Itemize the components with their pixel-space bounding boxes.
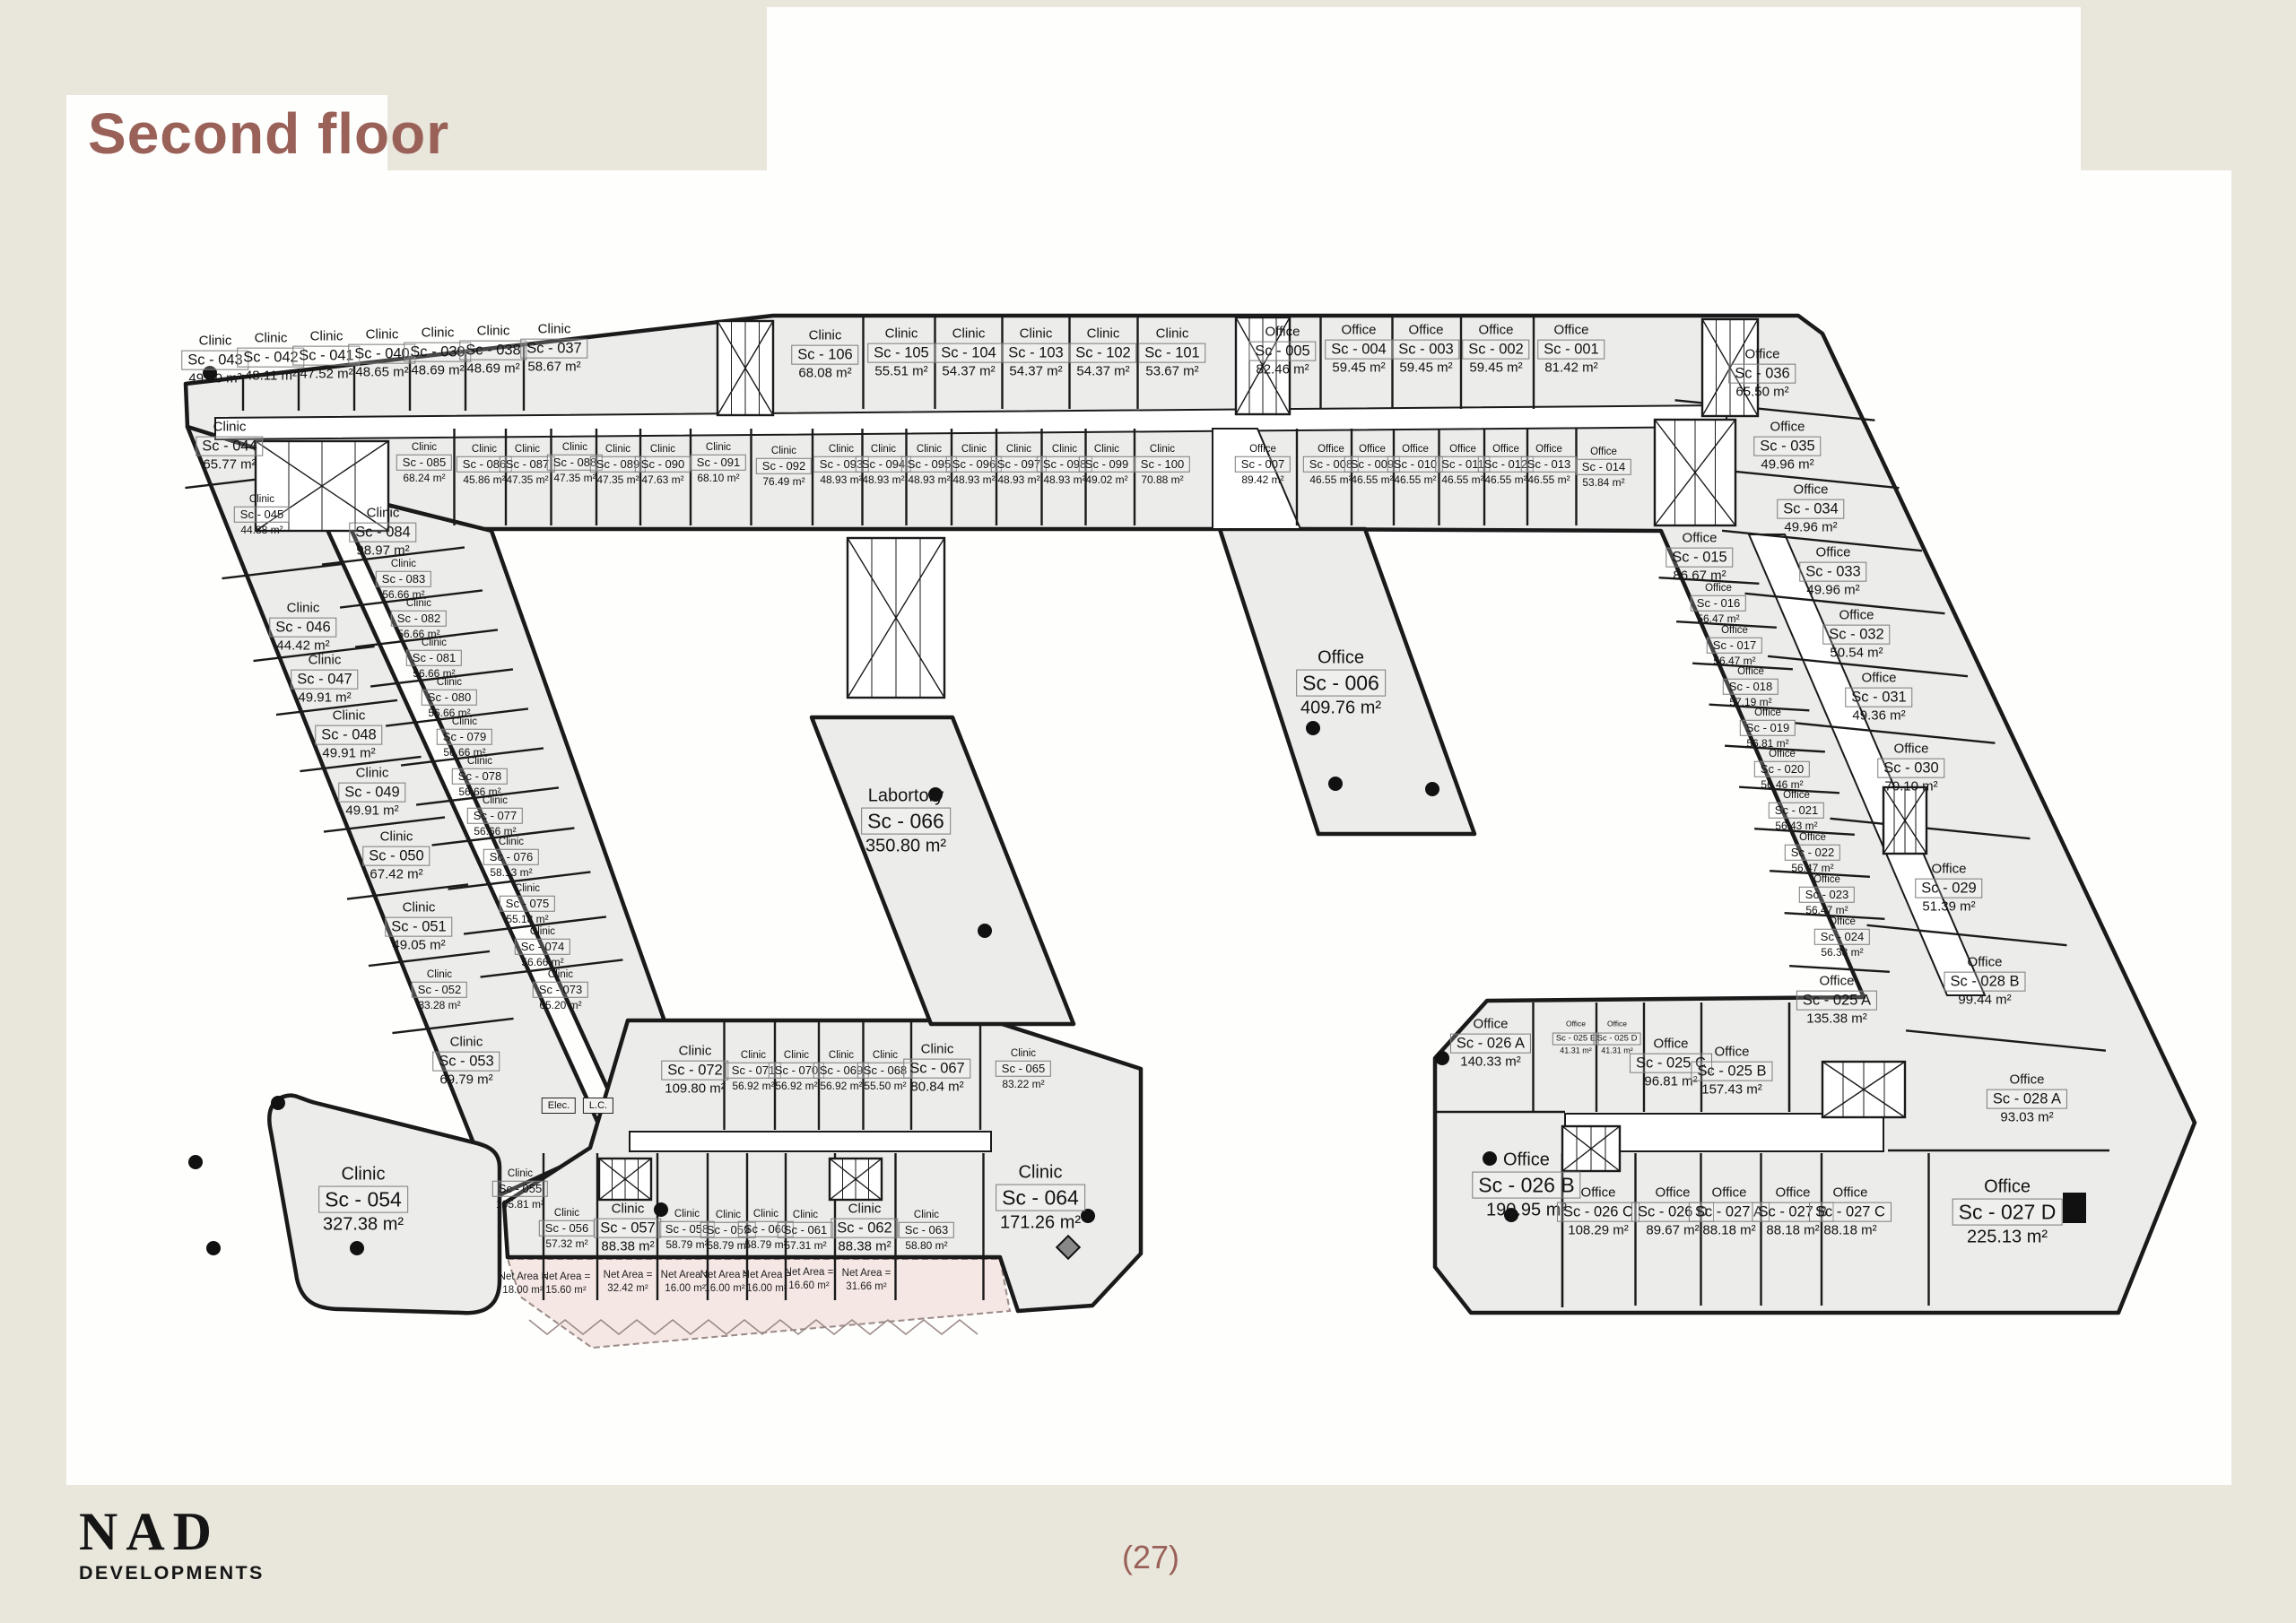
room-number: Sc - 092 (756, 458, 812, 474)
room-label-sc-032: OfficeSc - 03250.54 m² (1822, 608, 1890, 663)
room-label-sc-081: ClinicSc - 08156.66 m² (406, 637, 462, 681)
utility-room-label: Elec. (542, 1098, 576, 1114)
logo-subtitle-text: DEVELOPMENTS (79, 1562, 265, 1584)
room-number: Sc - 100 (1135, 456, 1190, 473)
room-area: 108.29 m² (1557, 1223, 1639, 1239)
room-area: 70.10 m² (1877, 779, 1944, 795)
room-area: 58.67 m² (520, 360, 587, 376)
room-type: Office (1665, 531, 1733, 547)
net-area-label: Net Area =16.60 m² (785, 1266, 834, 1293)
room-area: 49.91 m² (315, 746, 382, 762)
room-area: 51.39 m² (1915, 899, 1982, 916)
room-label-sc-038: ClinicSc - 03848.69 m² (459, 324, 526, 378)
room-type: Office (1691, 582, 1746, 595)
room-type: Office (1594, 1020, 1641, 1028)
room-number: Sc - 046 (269, 618, 336, 638)
room-type: Office (1557, 1185, 1639, 1202)
room-label-sc-003: OfficeSc - 00359.45 m² (1392, 323, 1459, 378)
room-label-sc-092: ClinicSc - 09276.49 m² (756, 445, 812, 489)
room-label-sc-013: OfficeSc - 01346.55 m² (1521, 443, 1577, 487)
room-number: Sc - 105 (867, 343, 935, 363)
room-type: Clinic (867, 326, 935, 343)
room-area: 46.55 m² (1521, 473, 1577, 487)
room-area: 69.79 m² (432, 1072, 500, 1089)
room-area: 59.45 m² (1462, 360, 1529, 377)
room-label-sc-020: OfficeSc - 02056.46 m² (1754, 748, 1810, 792)
room-area: 54.37 m² (1002, 364, 1069, 380)
room-type: Office (1392, 323, 1459, 339)
room-number: Sc - 007 (1235, 456, 1291, 473)
room-number: Sc - 028 A (1987, 1089, 2067, 1109)
room-label-sc-027d: OfficeSc - 027 D225.13 m² (1952, 1176, 2063, 1249)
room-label-sc-099: ClinicSc - 09949.02 m² (1079, 443, 1135, 487)
room-type: Clinic (899, 1209, 954, 1221)
room-label-sc-021: OfficeSc - 02156.43 m² (1769, 789, 1824, 833)
page-title: Second floor (88, 100, 449, 167)
room-area: 49.91 m² (291, 690, 358, 707)
stair-core-icon (830, 1159, 882, 1200)
room-number: Sc - 052 (412, 982, 467, 998)
room-type: Clinic (376, 558, 431, 570)
room-area: 41.31 m² (1552, 1046, 1599, 1055)
room-number: Sc - 075 (500, 896, 555, 912)
room-label-sc-057: ClinicSc - 05788.38 m² (594, 1202, 661, 1256)
room-area: 55.51 m² (867, 364, 935, 380)
room-type: Clinic (1079, 443, 1135, 456)
room-number: Sc - 077 (467, 808, 523, 824)
room-type: Office (1576, 446, 1631, 458)
room-number: Sc - 048 (315, 725, 382, 745)
room-area: 57.32 m² (539, 1237, 595, 1251)
room-label-sc-077: ClinicSc - 07756.66 m² (467, 794, 523, 838)
room-label-sc-052: ClinicSc - 05233.28 m² (412, 968, 467, 1012)
room-type: Clinic (315, 708, 382, 725)
room-type: Clinic (594, 1202, 661, 1218)
room-type: Clinic (269, 601, 336, 617)
room-type: Office (1462, 323, 1529, 339)
room-type: Clinic (412, 968, 467, 981)
room-label-sc-064: ClinicSc - 064171.26 m² (996, 1162, 1085, 1235)
room-number: Sc - 061 (778, 1222, 833, 1238)
room-label-sc-075: ClinicSc - 07555.18 m² (500, 882, 555, 926)
room-type: Clinic (459, 324, 526, 340)
room-label-sc-076: ClinicSc - 07658.13 m² (483, 836, 539, 880)
room-number: Sc - 025 B (1691, 1062, 1772, 1081)
room-label-sc-085: ClinicSc - 08568.24 m² (396, 441, 452, 485)
room-number: Sc - 035 (1753, 437, 1821, 456)
room-area: 53.84 m² (1576, 476, 1631, 490)
room-label-sc-034: OfficeSc - 03449.96 m² (1777, 482, 1844, 537)
room-area: 56.38 m² (1814, 946, 1870, 959)
room-area: 48.69 m² (459, 361, 526, 378)
room-label-sc-053: ClinicSc - 05369.79 m² (432, 1035, 500, 1089)
room-area: 49.96 m² (1799, 583, 1866, 599)
room-area: 89.42 m² (1235, 473, 1291, 487)
room-number: Sc - 023 (1799, 887, 1855, 903)
room-type: Clinic (635, 443, 691, 456)
room-label-sc-104: ClinicSc - 10454.37 m² (935, 326, 1002, 381)
room-type: Office (1707, 624, 1762, 637)
room-type: Office (1915, 862, 1982, 878)
room-type: Clinic (385, 900, 452, 916)
room-type: Office (1785, 831, 1840, 844)
room-area: 99.44 m² (1944, 993, 2025, 1009)
room-number: Sc - 103 (1002, 343, 1069, 363)
room-type: Clinic (533, 968, 588, 981)
room-area: 65.50 m² (1728, 385, 1796, 401)
room-area: 56.66 m² (515, 956, 570, 969)
room-label-sc-080: ClinicSc - 08056.66 m² (422, 676, 477, 720)
room-area: 409.76 m² (1296, 698, 1386, 719)
room-number: Sc - 047 (291, 670, 358, 690)
room-type: Clinic (1138, 326, 1205, 343)
room-area: 49.96 m² (1753, 457, 1821, 473)
room-area: 49.02 m² (1079, 473, 1135, 487)
room-number: Sc - 003 (1392, 340, 1459, 360)
room-area: 58.13 m² (483, 866, 539, 880)
room-number: Sc - 029 (1915, 879, 1982, 898)
room-number: Sc - 102 (1069, 343, 1136, 363)
room-area: 135.38 m² (1796, 1011, 1877, 1028)
room-number: Sc - 084 (349, 523, 416, 542)
room-number: Sc - 006 (1296, 670, 1386, 697)
room-number: Sc - 022 (1785, 845, 1840, 861)
room-number: Sc - 054 (318, 1186, 408, 1213)
developer-logo: NAD DEVELOPMENTS (79, 1505, 265, 1584)
slide-page: Second floor ClinicSc - 04349.50 m²Clini… (0, 0, 2296, 1623)
stair-core-icon (717, 321, 773, 415)
room-label-sc-067: ClinicSc - 06780.84 m² (903, 1042, 970, 1097)
net-area-label: Net Area =15.60 m² (542, 1271, 591, 1298)
room-type: Office (1777, 482, 1844, 499)
room-number: Sc - 073 (533, 982, 588, 998)
room-label-sc-048: ClinicSc - 04849.91 m² (315, 708, 382, 763)
room-area: 49.91 m² (338, 803, 405, 820)
room-type: Office (1845, 671, 1912, 687)
room-number: Sc - 021 (1769, 803, 1824, 819)
room-number: Sc - 062 (831, 1219, 898, 1238)
room-number: Sc - 045 (234, 507, 290, 523)
room-type: Clinic (1069, 326, 1136, 343)
room-type: Office (1799, 873, 1855, 886)
room-label-sc-062: ClinicSc - 06288.38 m² (831, 1202, 898, 1256)
room-type: Office (1296, 647, 1386, 669)
room-label-sc-022: OfficeSc - 02256.47 m² (1785, 831, 1840, 875)
room-type: Office (1753, 420, 1821, 436)
room-number: Sc - 001 (1537, 340, 1605, 360)
room-number: Sc - 078 (452, 768, 508, 785)
room-number: Sc - 027 C (1809, 1202, 1892, 1222)
room-label-sc-014: OfficeSc - 01453.84 m² (1576, 446, 1631, 490)
room-type: Office (1691, 1045, 1772, 1061)
room-type: Labortory (861, 785, 951, 807)
room-label-sc-047: ClinicSc - 04749.91 m² (291, 653, 358, 707)
room-type: Clinic (791, 328, 858, 344)
room-number: Sc - 027 D (1952, 1199, 2063, 1226)
room-label-sc-001: OfficeSc - 00181.42 m² (1537, 323, 1605, 378)
room-label-sc-105: ClinicSc - 10555.51 m² (867, 326, 935, 381)
room-type: Clinic (338, 766, 405, 782)
room-number: Sc - 031 (1845, 688, 1912, 707)
stair-core-icon (1883, 787, 1926, 854)
room-type: Office (1521, 443, 1577, 456)
room-number: Sc - 004 (1325, 340, 1392, 360)
room-type: Office (1987, 1072, 2067, 1089)
room-label-sc-063: ClinicSc - 06358.80 m² (899, 1209, 954, 1253)
room-label-sc-007: OfficeSc - 00789.42 m² (1235, 443, 1291, 487)
room-label-sc-106: ClinicSc - 10668.08 m² (791, 328, 858, 383)
room-type: Clinic (691, 441, 746, 454)
room-area: 65.20 m² (533, 999, 588, 1012)
room-number: Sc - 067 (903, 1059, 970, 1079)
room-label-sc-054: ClinicSc - 054327.38 m² (318, 1164, 408, 1237)
room-area: 350.80 m² (861, 836, 951, 857)
room-area: 49.05 m² (385, 938, 452, 954)
room-label-sc-100: ClinicSc - 10070.88 m² (1135, 443, 1190, 487)
room-type: Office (1235, 443, 1291, 456)
room-area: 82.46 m² (1248, 362, 1316, 378)
room-label-sc-055: ClinicSc - 055105.81 m² (492, 1167, 548, 1211)
room-label-sc-044: ClinicSc - 04465.77 m² (196, 420, 263, 474)
room-type: Clinic (756, 445, 812, 457)
room-number: Sc - 037 (520, 339, 587, 359)
room-label-sc-017: OfficeSc - 01756.47 m² (1707, 624, 1762, 668)
room-number: Sc - 053 (432, 1052, 500, 1072)
room-type: Clinic (500, 882, 555, 895)
room-type: Clinic (406, 637, 462, 649)
room-number: Sc - 013 (1521, 456, 1577, 473)
room-type: Clinic (831, 1202, 898, 1218)
room-label-sc-028b: OfficeSc - 028 B99.44 m² (1944, 955, 2025, 1010)
room-number: Sc - 063 (899, 1222, 954, 1238)
room-area: 140.33 m² (1450, 1055, 1531, 1071)
room-label-sc-049: ClinicSc - 04949.91 m² (338, 766, 405, 820)
room-number: Sc - 074 (515, 939, 570, 955)
room-label-sc-072: ClinicSc - 072109.80 m² (661, 1044, 728, 1098)
room-label-sc-025e: OfficeSc - 025 E41.31 m² (1552, 1020, 1599, 1056)
room-label-sc-005: OfficeSc - 00582.46 m² (1248, 325, 1316, 379)
room-number: Sc - 079 (437, 729, 492, 745)
room-area: 67.42 m² (362, 867, 430, 883)
room-label-sc-061: ClinicSc - 06157.31 m² (778, 1209, 833, 1253)
room-area: 49.96 m² (1777, 520, 1844, 536)
room-number: Sc - 026 A (1450, 1034, 1531, 1054)
room-area: 93.03 m² (1987, 1110, 2067, 1126)
logo-brand-text: NAD (79, 1505, 265, 1558)
room-number: Sc - 025 E (1552, 1033, 1599, 1046)
room-label-sc-056: ClinicSc - 05657.32 m² (539, 1207, 595, 1251)
room-number: Sc - 016 (1691, 595, 1746, 612)
room-label-sc-019: OfficeSc - 01956.81 m² (1740, 707, 1796, 751)
room-label-sc-066: LabortorySc - 066350.80 m² (861, 785, 951, 858)
room-number: Sc - 030 (1877, 759, 1944, 778)
room-type: Clinic (1135, 443, 1190, 456)
room-label-sc-002: OfficeSc - 00259.45 m² (1462, 323, 1529, 378)
room-number: Sc - 025 A (1796, 991, 1877, 1011)
room-number: Sc - 017 (1707, 638, 1762, 654)
room-type: Office (1822, 608, 1890, 624)
room-label-sc-033: OfficeSc - 03349.96 m² (1799, 545, 1866, 600)
room-area: 70.88 m² (1135, 473, 1190, 487)
room-label-sc-046: ClinicSc - 04644.42 m² (269, 601, 336, 655)
room-label-sc-015: OfficeSc - 01586.67 m² (1665, 531, 1733, 586)
room-area: 88.38 m² (831, 1239, 898, 1255)
room-number: Sc - 106 (791, 345, 858, 365)
room-area: 327.38 m² (318, 1214, 408, 1236)
room-area: 55.18 m² (500, 913, 555, 926)
room-number: Sc - 020 (1754, 761, 1810, 777)
room-area: 57.31 m² (778, 1239, 833, 1253)
room-number: Sc - 055 (492, 1181, 548, 1197)
room-type: Clinic (432, 1035, 500, 1051)
room-area: 54.37 m² (1069, 364, 1136, 380)
room-type: Clinic (234, 493, 290, 506)
room-area: 53.67 m² (1138, 364, 1205, 380)
room-number: Sc - 080 (422, 690, 477, 706)
room-label-sc-051: ClinicSc - 05149.05 m² (385, 900, 452, 955)
room-type: Office (1325, 323, 1392, 339)
room-type: Office (1809, 1185, 1892, 1202)
room-label-sc-016: OfficeSc - 01656.47 m² (1691, 582, 1746, 626)
room-area: 59.45 m² (1392, 360, 1459, 377)
room-label-sc-035: OfficeSc - 03549.96 m² (1753, 420, 1821, 474)
room-type: Office (1944, 955, 2025, 971)
room-number: Sc - 099 (1079, 456, 1135, 473)
room-area: 157.43 m² (1691, 1082, 1772, 1098)
room-number: Sc - 014 (1576, 459, 1631, 475)
room-label-sc-050: ClinicSc - 05067.42 m² (362, 829, 430, 884)
room-type: Clinic (391, 597, 447, 610)
room-area: 47.63 m² (635, 473, 691, 487)
room-label-sc-045: ClinicSc - 04544.88 m² (234, 493, 290, 537)
room-number: Sc - 026 C (1557, 1202, 1639, 1222)
room-label-sc-027c: OfficeSc - 027 C88.18 m² (1809, 1185, 1892, 1240)
room-label-sc-101: ClinicSc - 10153.67 m² (1138, 326, 1205, 381)
room-type: Office (1796, 974, 1877, 990)
room-type: Office (1754, 748, 1810, 760)
room-type: Clinic (422, 676, 477, 689)
room-label-sc-025a: OfficeSc - 025 A135.38 m² (1796, 974, 1877, 1028)
room-area: 80.84 m² (903, 1080, 970, 1096)
room-area: 44.88 m² (234, 524, 290, 537)
room-label-sc-082: ClinicSc - 08256.66 m² (391, 597, 447, 641)
room-label-sc-065: ClinicSc - 06583.22 m² (996, 1047, 1051, 1091)
room-number: Sc - 036 (1728, 364, 1796, 384)
room-label-sc-036: OfficeSc - 03665.50 m² (1728, 347, 1796, 402)
net-area-label: Net Area =31.66 m² (842, 1267, 891, 1294)
room-type: Clinic (1002, 326, 1069, 343)
room-label-sc-079: ClinicSc - 07956.66 m² (437, 716, 492, 759)
room-label-sc-031: OfficeSc - 03149.36 m² (1845, 671, 1912, 725)
room-type: Clinic (467, 794, 523, 807)
room-type: Office (1740, 707, 1796, 719)
room-type: Office (1472, 1150, 1580, 1171)
room-type: Clinic (661, 1044, 728, 1060)
room-type: Clinic (396, 441, 452, 454)
stair-core-icon (848, 538, 944, 698)
room-label-sc-028a: OfficeSc - 028 A93.03 m² (1987, 1072, 2067, 1127)
room-area: 68.24 m² (396, 472, 452, 485)
room-type: Office (1952, 1176, 2063, 1198)
room-area: 88.18 m² (1809, 1223, 1892, 1239)
room-type: Office (1537, 323, 1605, 339)
room-number: Sc - 018 (1723, 679, 1779, 695)
room-type: Clinic (996, 1162, 1085, 1184)
room-area: 33.28 m² (412, 999, 467, 1012)
room-label-sc-084: ClinicSc - 08498.97 m² (349, 506, 416, 560)
room-number: Sc - 064 (996, 1185, 1085, 1211)
room-type: Office (1799, 545, 1866, 561)
room-label-sc-073: ClinicSc - 07365.20 m² (533, 968, 588, 1012)
room-number: Sc - 044 (196, 437, 263, 456)
room-number: Sc - 091 (691, 455, 746, 471)
room-area: 50.54 m² (1822, 646, 1890, 662)
room-type: Office (1248, 325, 1316, 341)
room-label-sc-102: ClinicSc - 10254.37 m² (1069, 326, 1136, 381)
room-area: 83.22 m² (996, 1078, 1051, 1091)
room-type: Clinic (903, 1042, 970, 1058)
stair-core-icon (1822, 1062, 1905, 1117)
room-number: Sc - 057 (594, 1219, 661, 1238)
room-area: 109.80 m² (661, 1081, 728, 1098)
room-number: Sc - 104 (935, 343, 1002, 363)
room-number: Sc - 032 (1822, 625, 1890, 645)
room-type: Office (1877, 742, 1944, 758)
room-label-sc-029: OfficeSc - 02951.39 m² (1915, 862, 1982, 916)
room-label-sc-004: OfficeSc - 00459.45 m² (1325, 323, 1392, 378)
room-type: Clinic (362, 829, 430, 846)
room-label-sc-090: ClinicSc - 09047.63 m² (635, 443, 691, 487)
room-type: Clinic (452, 755, 508, 768)
room-label-sc-025b: OfficeSc - 025 B157.43 m² (1691, 1045, 1772, 1099)
room-number: Sc - 072 (661, 1061, 728, 1081)
room-type: Office (1552, 1020, 1599, 1028)
room-label-sc-024: OfficeSc - 02456.38 m² (1814, 916, 1870, 959)
room-label-sc-026a: OfficeSc - 026 A140.33 m² (1450, 1017, 1531, 1072)
room-number: Sc - 083 (376, 571, 431, 587)
room-number: Sc - 028 B (1944, 972, 2025, 992)
room-number: Sc - 038 (459, 341, 526, 360)
room-type: Clinic (539, 1207, 595, 1219)
room-number: Sc - 082 (391, 611, 447, 627)
room-type: Clinic (520, 322, 587, 338)
room-number: Sc - 056 (539, 1220, 595, 1237)
room-type: Office (1723, 665, 1779, 678)
room-label-sc-023: OfficeSc - 02356.47 m² (1799, 873, 1855, 917)
room-type: Clinic (437, 716, 492, 728)
room-number: Sc - 049 (338, 783, 405, 803)
room-label-sc-078: ClinicSc - 07856.66 m² (452, 755, 508, 799)
room-type: Office (1728, 347, 1796, 363)
room-type: Clinic (996, 1047, 1051, 1060)
room-label-sc-103: ClinicSc - 10354.37 m² (1002, 326, 1069, 381)
utility-room-label: L.C. (583, 1098, 613, 1114)
room-number: Sc - 024 (1814, 929, 1870, 945)
room-number: Sc - 005 (1248, 342, 1316, 361)
room-number: Sc - 090 (635, 456, 691, 473)
net-area-label: Net Area =18.00 m² (499, 1271, 548, 1298)
room-number: Sc - 085 (396, 455, 452, 471)
room-type: Office (1769, 789, 1824, 802)
room-number: Sc - 101 (1138, 343, 1205, 363)
stair-core-icon (599, 1159, 651, 1200)
room-type: Clinic (778, 1209, 833, 1221)
room-number: Sc - 050 (362, 846, 430, 866)
room-number: Sc - 065 (996, 1061, 1051, 1077)
room-number: Sc - 002 (1462, 340, 1529, 360)
room-type: Clinic (291, 653, 358, 669)
room-label-sc-074: ClinicSc - 07456.66 m² (515, 925, 570, 969)
